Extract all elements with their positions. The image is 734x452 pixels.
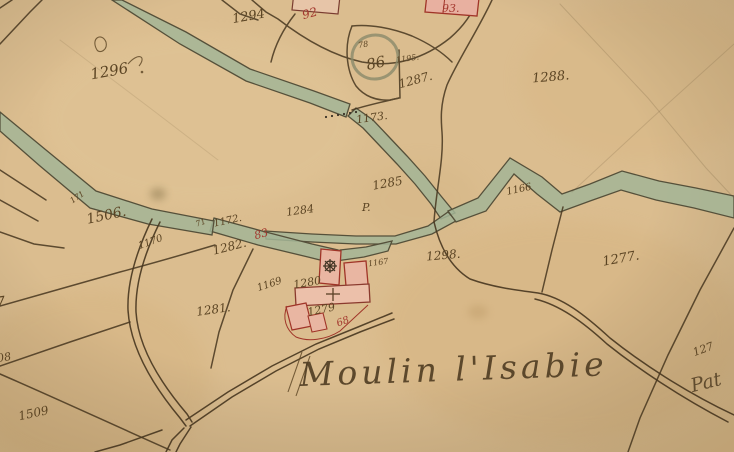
ink-dot: [141, 71, 144, 74]
symbol-P: P.: [361, 201, 371, 214]
building-square: [344, 261, 368, 286]
map-image: 1294 1296 1288. 78 86 1195. 1287. 1173. …: [0, 0, 734, 452]
parcel-number-93: 93.: [442, 2, 460, 15]
cadastral-map-canvas[interactable]: 1294 1296 1288. 78 86 1195. 1287. 1173. …: [0, 0, 734, 452]
mill-wheel-icon: [323, 259, 337, 273]
parcel-number-78: 78: [357, 39, 369, 50]
parcel-number-1298: 1298.: [426, 247, 461, 264]
